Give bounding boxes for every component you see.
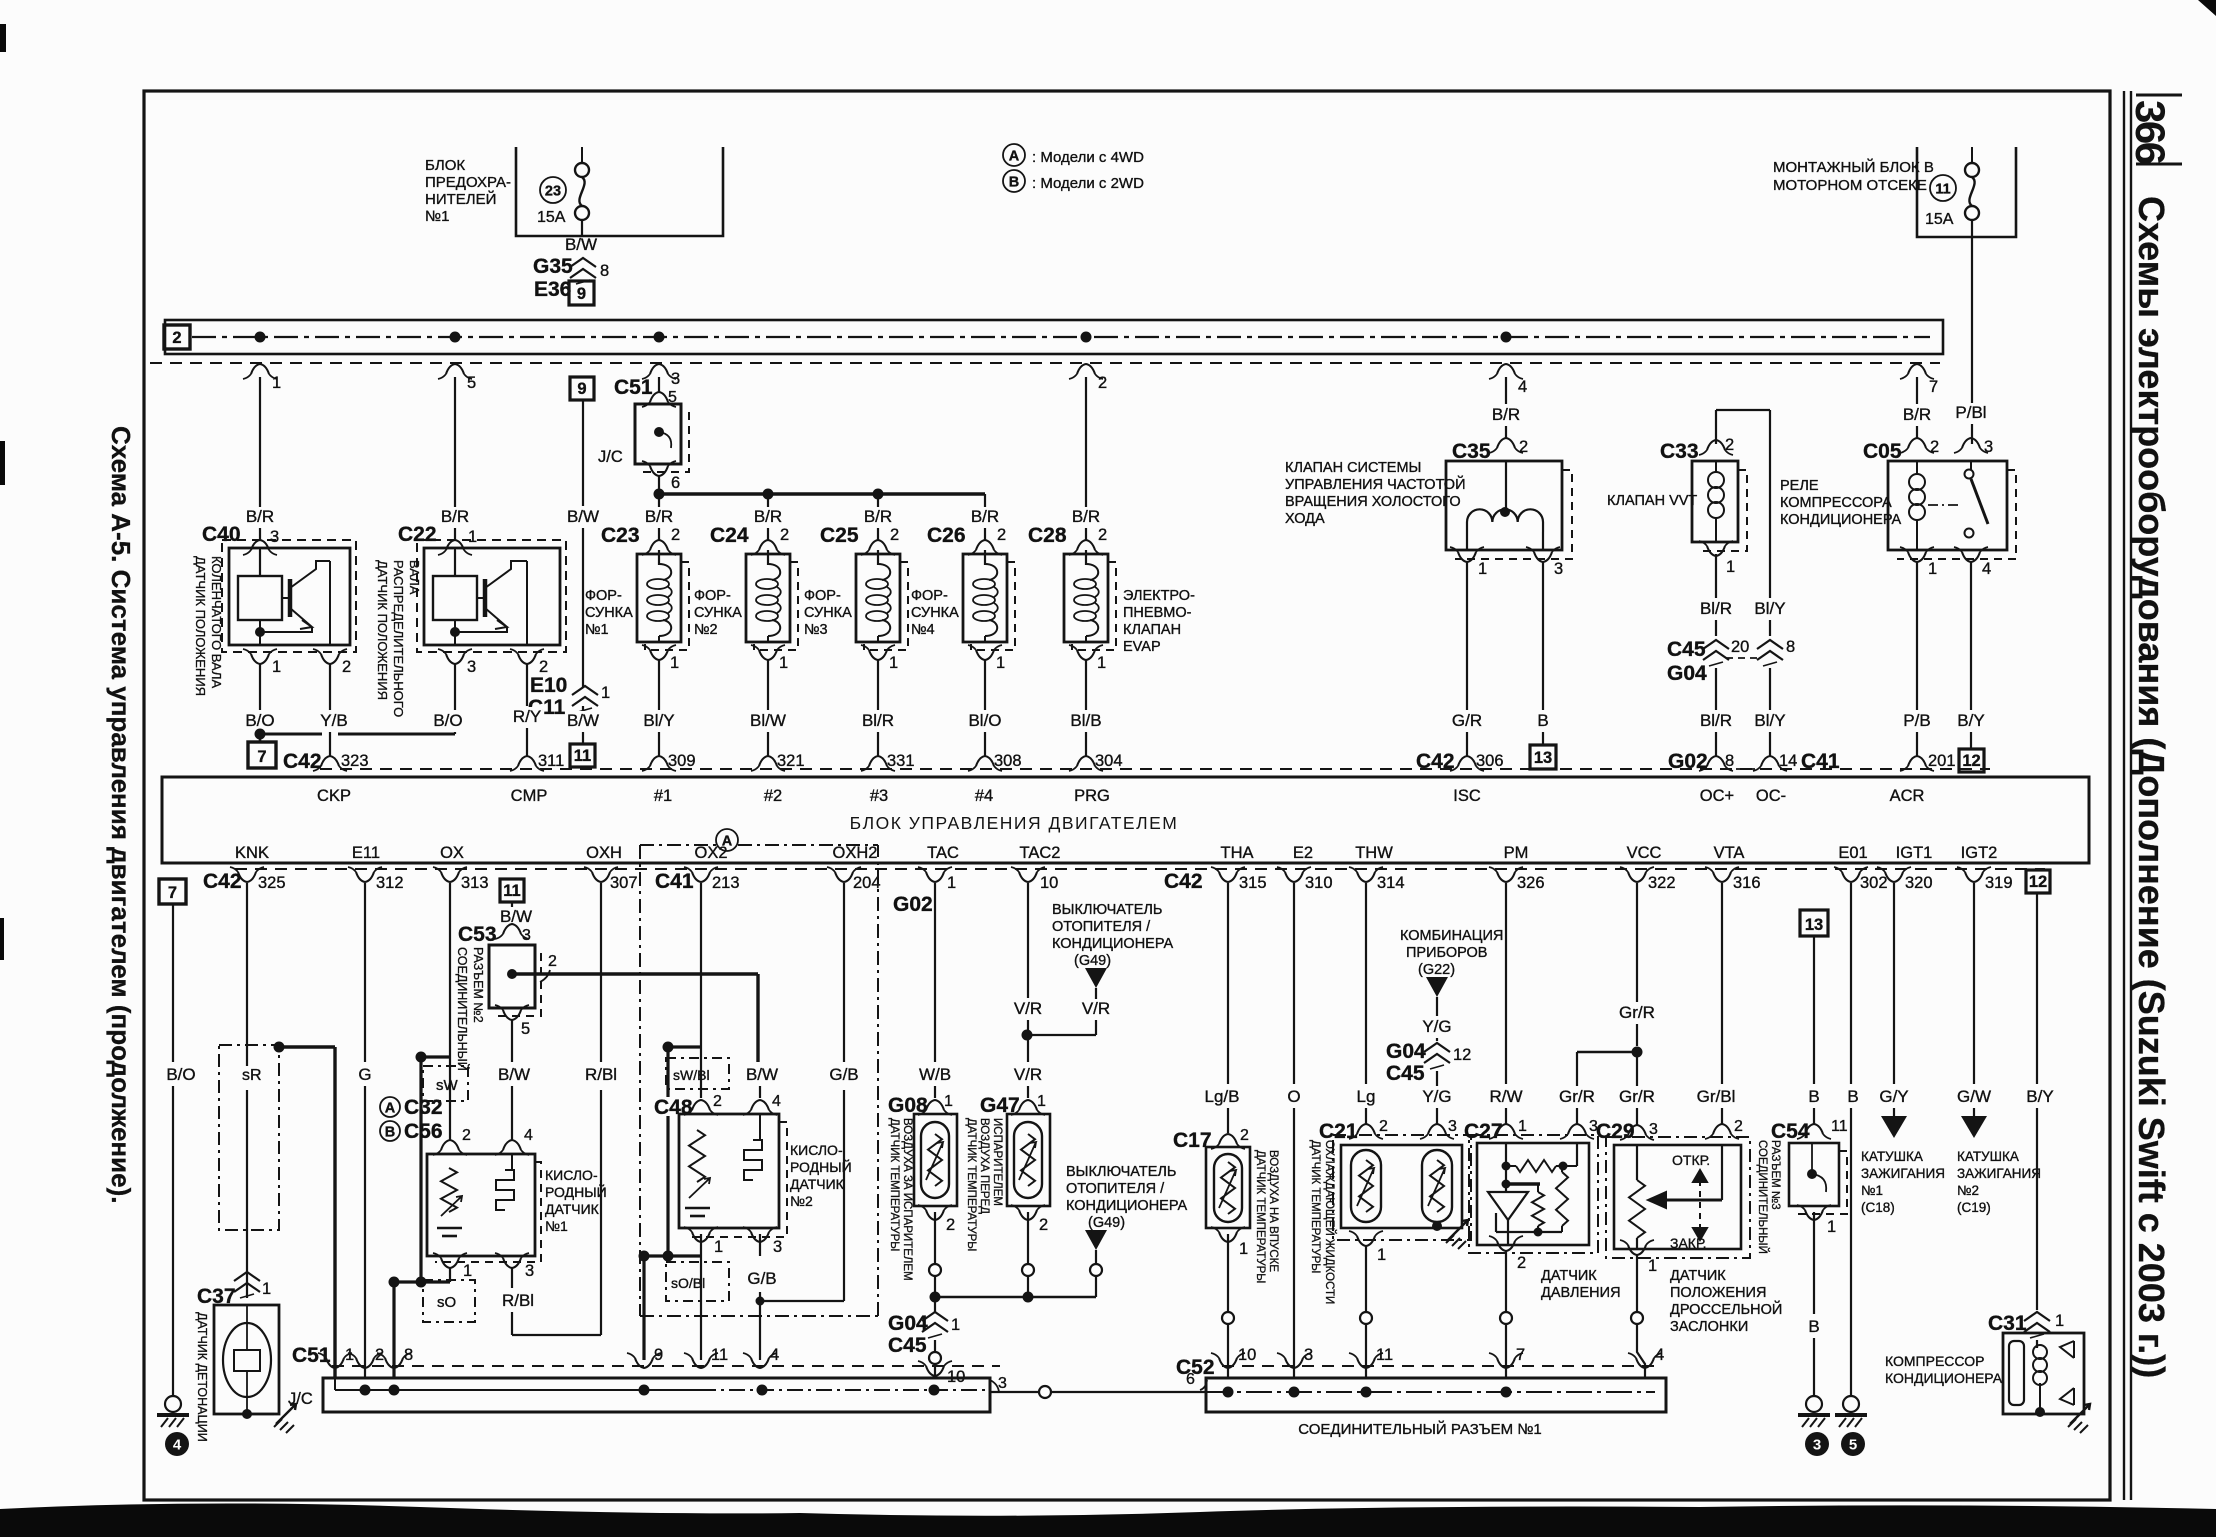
svg-text:4: 4 xyxy=(173,1437,182,1454)
svg-text:2: 2 xyxy=(713,1093,722,1110)
svg-text:315: 315 xyxy=(1239,874,1267,892)
svg-text:1: 1 xyxy=(272,658,281,676)
svg-text:G: G xyxy=(358,1065,371,1084)
svg-text:312: 312 xyxy=(376,874,404,892)
svg-text:СОЕДИНИТЕЛЬНЫЙ: СОЕДИНИТЕЛЬНЫЙ xyxy=(1756,1140,1769,1254)
svg-text:(G49): (G49) xyxy=(1088,1215,1125,1231)
svg-text:R/Bl: R/Bl xyxy=(585,1065,617,1084)
svg-text:ОТКР.: ОТКР. xyxy=(1672,1152,1710,1168)
svg-text:1: 1 xyxy=(714,1238,723,1256)
svg-text:G/R: G/R xyxy=(1452,711,1482,730)
svg-text:G/B: G/B xyxy=(829,1065,858,1084)
svg-text:Bl/R: Bl/R xyxy=(1700,599,1732,618)
svg-text:(G49): (G49) xyxy=(1074,953,1111,969)
svg-text:7: 7 xyxy=(168,884,177,902)
svg-text:307: 307 xyxy=(610,874,638,892)
svg-text:ИСПАРИТЕЛЕМ: ИСПАРИТЕЛЕМ xyxy=(991,1118,1003,1206)
svg-text:Bl/B: Bl/B xyxy=(1070,711,1101,730)
svg-text:2: 2 xyxy=(997,526,1006,544)
svg-text:Bl/R: Bl/R xyxy=(1700,711,1732,730)
svg-text:1: 1 xyxy=(951,1316,960,1334)
svg-text:J/C: J/C xyxy=(288,1390,313,1408)
svg-text:Y/B: Y/B xyxy=(320,711,347,730)
svg-text:4: 4 xyxy=(1982,560,1991,578)
svg-text:13: 13 xyxy=(1805,916,1823,934)
svg-text:Gr/R: Gr/R xyxy=(1559,1087,1595,1106)
svg-text:11: 11 xyxy=(574,747,591,765)
svg-text:3: 3 xyxy=(773,1238,782,1256)
svg-text:9: 9 xyxy=(577,380,586,398)
svg-text:ПНЕВМО-: ПНЕВМО- xyxy=(1123,605,1192,621)
svg-text:B/W: B/W xyxy=(567,507,599,526)
svg-text:ДАТЧИК: ДАТЧИК xyxy=(1670,1268,1726,1284)
svg-text:306: 306 xyxy=(1476,752,1504,770)
svg-text:3: 3 xyxy=(1649,1121,1658,1138)
svg-text:9: 9 xyxy=(577,285,586,303)
svg-text:№2: №2 xyxy=(790,1193,813,1209)
svg-text:4: 4 xyxy=(524,1127,533,1144)
svg-text:366: 366 xyxy=(2127,100,2174,164)
svg-text:C42: C42 xyxy=(203,870,242,893)
svg-text:10: 10 xyxy=(1238,1346,1256,1364)
svg-text:B/O: B/O xyxy=(433,711,462,730)
svg-text:ДРОССЕЛЬНОЙ: ДРОССЕЛЬНОЙ xyxy=(1670,1300,1782,1318)
svg-text:C32: C32 xyxy=(404,1096,443,1119)
svg-text:201: 201 xyxy=(1928,752,1956,770)
svg-text:Gr/Bl: Gr/Bl xyxy=(1697,1087,1736,1106)
svg-text:316: 316 xyxy=(1733,874,1761,892)
svg-text:БЛОК УПРАВЛЕНИЯ ДВИГАТЕЛЕМ: БЛОК УПРАВЛЕНИЯ ДВИГАТЕЛЕМ xyxy=(850,813,1179,833)
svg-text:Bl/O: Bl/O xyxy=(968,711,1001,730)
svg-text:R/Bl: R/Bl xyxy=(502,1291,534,1310)
svg-text:ОТОПИТЕЛЯ /: ОТОПИТЕЛЯ / xyxy=(1066,1181,1165,1197)
svg-text:C05: C05 xyxy=(1863,440,1902,463)
svg-text:ПОЛОЖЕНИЯ: ПОЛОЖЕНИЯ xyxy=(1670,1285,1766,1301)
svg-text:КОНДИЦИОНЕРА: КОНДИЦИОНЕРА xyxy=(1885,1370,2003,1386)
svg-text:ХОДА: ХОДА xyxy=(1285,511,1325,527)
svg-text:302: 302 xyxy=(1860,874,1888,892)
svg-text:B/R: B/R xyxy=(1903,405,1931,424)
svg-text:ВОЗДУХА ПЕРЕД: ВОЗДУХА ПЕРЕД xyxy=(978,1118,990,1214)
svg-text:СОЕДИНИТЕЛЬНЫЙ: СОЕДИНИТЕЛЬНЫЙ xyxy=(455,947,470,1071)
svg-text:E2: E2 xyxy=(1293,844,1313,862)
svg-text:Lg: Lg xyxy=(1357,1087,1376,1106)
svg-text:321: 321 xyxy=(777,752,805,770)
svg-text:1: 1 xyxy=(1648,1257,1657,1275)
svg-text:ВАЛА: ВАЛА xyxy=(407,560,422,595)
svg-text:G/B: G/B xyxy=(747,1269,776,1288)
svg-text:15A: 15A xyxy=(537,209,566,226)
svg-text:#3: #3 xyxy=(870,787,888,805)
svg-text:1: 1 xyxy=(1239,1240,1248,1258)
svg-text:#2: #2 xyxy=(764,787,782,805)
svg-text:308: 308 xyxy=(994,752,1022,770)
svg-text:ОХЛАЖДАЮЩЕЙ ЖИДКОСТИ: ОХЛАЖДАЮЩЕЙ ЖИДКОСТИ xyxy=(1323,1140,1336,1304)
svg-text:G04: G04 xyxy=(1386,1040,1426,1063)
svg-text:VCC: VCC xyxy=(1627,844,1662,862)
svg-text:РОДНЫЙ: РОДНЫЙ xyxy=(545,1183,607,1200)
svg-text:B: B xyxy=(1808,1087,1819,1106)
svg-text:OXH: OXH xyxy=(586,844,622,862)
svg-text:B/R: B/R xyxy=(441,507,469,526)
svg-text:КИСЛО-: КИСЛО- xyxy=(545,1167,598,1183)
svg-text:Bl/Y: Bl/Y xyxy=(1754,711,1785,730)
svg-text:КАТУШКА: КАТУШКА xyxy=(1957,1149,2019,1164)
svg-text:8: 8 xyxy=(1725,752,1734,770)
svg-text:10: 10 xyxy=(1040,874,1058,892)
svg-text:1: 1 xyxy=(468,528,477,546)
svg-text:12: 12 xyxy=(2029,873,2047,891)
svg-text:1: 1 xyxy=(889,654,898,672)
svg-text:PM: PM xyxy=(1504,844,1529,862)
svg-text:B: B xyxy=(1847,1087,1858,1106)
svg-text:C40: C40 xyxy=(202,523,241,546)
svg-text:1: 1 xyxy=(670,654,679,672)
svg-text:OC+: OC+ xyxy=(1700,787,1734,805)
svg-text:IGT1: IGT1 xyxy=(1896,844,1933,862)
svg-text:5: 5 xyxy=(467,374,476,392)
svg-text:VTA: VTA xyxy=(1714,844,1745,862)
svg-text:№4: №4 xyxy=(911,622,935,638)
svg-text:#4: #4 xyxy=(975,787,993,805)
svg-text:6: 6 xyxy=(1186,1371,1195,1388)
svg-text:3: 3 xyxy=(467,658,476,676)
svg-text:ДАТЧИК ТЕМПЕРАТУРЫ: ДАТЧИК ТЕМПЕРАТУРЫ xyxy=(888,1118,900,1251)
svg-text:ПРЕДОХРА-: ПРЕДОХРА- xyxy=(425,174,511,191)
svg-text:A: A xyxy=(385,1101,396,1117)
svg-text:4: 4 xyxy=(1518,378,1527,396)
svg-text:2: 2 xyxy=(172,329,181,347)
svg-text:СУНКА: СУНКА xyxy=(585,605,633,621)
svg-text:ЗАСЛОНКИ: ЗАСЛОНКИ xyxy=(1670,1319,1748,1335)
svg-text:C35: C35 xyxy=(1452,440,1491,463)
svg-text:7: 7 xyxy=(1516,1346,1525,1364)
svg-text:2: 2 xyxy=(1240,1127,1249,1144)
svg-text:КОМПРЕССОРА: КОМПРЕССОРА xyxy=(1780,495,1892,511)
svg-text:5: 5 xyxy=(1849,1437,1857,1454)
svg-text:1: 1 xyxy=(2055,1312,2064,1330)
svg-text:11: 11 xyxy=(503,882,520,900)
svg-text:B: B xyxy=(1009,175,1019,191)
svg-text:НИТЕЛЕЙ: НИТЕЛЕЙ xyxy=(425,190,496,208)
svg-text:1: 1 xyxy=(1518,1118,1527,1135)
svg-text:КЛАПАН VVT: КЛАПАН VVT xyxy=(1607,493,1697,509)
svg-text:304: 304 xyxy=(1095,752,1123,770)
svg-text:ПРИБОРОВ: ПРИБОРОВ xyxy=(1406,945,1487,961)
svg-text:B/W: B/W xyxy=(498,1065,530,1084)
svg-text:sO/Bl: sO/Bl xyxy=(671,1275,705,1291)
svg-text:C25: C25 xyxy=(820,524,859,547)
svg-text:ВОЗДУХА ЗА ИСПАРИТЕЛЕМ: ВОЗДУХА ЗА ИСПАРИТЕЛЕМ xyxy=(901,1118,913,1281)
svg-text:Bl/Y: Bl/Y xyxy=(1754,599,1785,618)
svg-text:C33: C33 xyxy=(1660,440,1699,463)
svg-text:C45: C45 xyxy=(1667,638,1706,661)
svg-text:1: 1 xyxy=(272,374,281,392)
svg-text:КЛАПАН СИСТЕМЫ: КЛАПАН СИСТЕМЫ xyxy=(1285,460,1421,476)
svg-text:ВЫКЛЮЧАТЕЛЬ: ВЫКЛЮЧАТЕЛЬ xyxy=(1066,1164,1176,1180)
svg-text:Схема А-5. Система управления: Схема А-5. Система управления двигателем… xyxy=(106,426,136,1203)
svg-text:СУНКА: СУНКА xyxy=(694,605,742,621)
svg-text:ДАТЧИК ТЕМПЕРАТУРЫ: ДАТЧИК ТЕМПЕРАТУРЫ xyxy=(965,1118,977,1251)
svg-text:2: 2 xyxy=(539,658,548,676)
svg-text:322: 322 xyxy=(1648,874,1676,892)
svg-text:2: 2 xyxy=(1930,438,1939,456)
svg-text:1: 1 xyxy=(1827,1218,1836,1236)
svg-text:1: 1 xyxy=(1726,558,1735,576)
svg-text:1: 1 xyxy=(262,1280,271,1298)
svg-text:РАСПРЕДЕЛИТЕЛЬНОГО: РАСПРЕДЕЛИТЕЛЬНОГО xyxy=(391,560,406,717)
svg-text:СУНКА: СУНКА xyxy=(804,605,852,621)
svg-text:sW: sW xyxy=(436,1077,459,1094)
svg-text:КЛАПАН: КЛАПАН xyxy=(1123,622,1181,638)
svg-text:C31: C31 xyxy=(1988,1312,2027,1335)
svg-text:314: 314 xyxy=(1377,874,1405,892)
svg-text:8: 8 xyxy=(404,1346,413,1364)
svg-text:C56: C56 xyxy=(404,1120,443,1143)
svg-text:КОНДИЦИОНЕРА: КОНДИЦИОНЕРА xyxy=(1052,936,1174,952)
svg-text:C45: C45 xyxy=(1386,1062,1425,1085)
svg-text:E36: E36 xyxy=(534,278,571,301)
svg-text:B/R: B/R xyxy=(1072,507,1100,526)
svg-text:: Модели с 4WD: : Модели с 4WD xyxy=(1032,149,1144,166)
svg-text:2: 2 xyxy=(890,526,899,544)
svg-text:331: 331 xyxy=(887,752,915,770)
svg-text:ISC: ISC xyxy=(1453,787,1481,805)
svg-text:G/W: G/W xyxy=(1957,1087,1991,1106)
svg-text:ЗАКР.: ЗАКР. xyxy=(1670,1235,1707,1251)
svg-text:ДАТЧИК ТЕМПЕРАТУРЫ: ДАТЧИК ТЕМПЕРАТУРЫ xyxy=(1309,1140,1321,1273)
svg-text:V/R: V/R xyxy=(1082,999,1110,1018)
svg-text:8: 8 xyxy=(600,262,609,280)
svg-text:ВРАЩЕНИЯ ХОЛОСТОГО: ВРАЩЕНИЯ ХОЛОСТОГО xyxy=(1285,494,1461,510)
svg-text:2: 2 xyxy=(462,1127,471,1144)
svg-text:2: 2 xyxy=(1098,374,1107,392)
svg-text:23: 23 xyxy=(545,184,561,200)
svg-text:Y/G: Y/G xyxy=(1422,1087,1451,1106)
svg-text:ДАТЧИК ДЕТОНАЦИИ: ДАТЧИК ДЕТОНАЦИИ xyxy=(195,1312,209,1442)
svg-text:КОНДИЦИОНЕРА: КОНДИЦИОНЕРА xyxy=(1780,512,1902,528)
svg-text:2: 2 xyxy=(1379,1118,1388,1135)
svg-text:323: 323 xyxy=(341,752,369,770)
svg-text:EVAP: EVAP xyxy=(1123,639,1161,655)
svg-text:B/R: B/R xyxy=(864,507,892,526)
svg-text:310: 310 xyxy=(1305,874,1333,892)
svg-text:СОЕДИНИТЕЛЬНЫЙ РАЗЪЕМ №1: СОЕДИНИТЕЛЬНЫЙ РАЗЪЕМ №1 xyxy=(1298,1420,1542,1438)
svg-text:КАТУШКА: КАТУШКА xyxy=(1861,1149,1923,1164)
svg-text:РОДНЫЙ: РОДНЫЙ xyxy=(790,1158,852,1175)
svg-text:ЗАЖИГАНИЯ: ЗАЖИГАНИЯ xyxy=(1957,1166,2041,1181)
svg-text:УПРАВЛЕНИЯ ЧАСТОТОЙ: УПРАВЛЕНИЯ ЧАСТОТОЙ xyxy=(1285,475,1466,493)
svg-text:TAC: TAC xyxy=(927,844,959,862)
svg-text:320: 320 xyxy=(1905,874,1933,892)
svg-text:12: 12 xyxy=(1453,1046,1471,1064)
svg-text:2: 2 xyxy=(342,658,351,676)
svg-text:C26: C26 xyxy=(927,524,966,547)
svg-text:ДАТЧИК ПОЛОЖЕНИЯ: ДАТЧИК ПОЛОЖЕНИЯ xyxy=(375,560,390,700)
svg-text:№3: №3 xyxy=(804,622,828,638)
svg-text:11: 11 xyxy=(711,1346,728,1364)
svg-text:: Модели с 2WD: : Модели с 2WD xyxy=(1032,175,1144,192)
svg-text:2: 2 xyxy=(780,526,789,544)
svg-text:309: 309 xyxy=(668,752,696,770)
svg-text:ФОР-: ФОР- xyxy=(911,588,948,604)
svg-text:G04: G04 xyxy=(1667,662,1707,685)
svg-text:E11: E11 xyxy=(352,844,380,862)
svg-text:IGT2: IGT2 xyxy=(1961,844,1998,862)
svg-text:C53: C53 xyxy=(458,923,497,946)
svg-text:TAC2: TAC2 xyxy=(1020,844,1061,862)
svg-text:1: 1 xyxy=(1478,560,1487,578)
svg-text:3: 3 xyxy=(1304,1346,1313,1364)
svg-text:Gr/R: Gr/R xyxy=(1619,1087,1655,1106)
svg-text:PRG: PRG xyxy=(1074,787,1110,805)
svg-text:ДАТЧИК: ДАТЧИК xyxy=(545,1201,600,1217)
svg-text:THA: THA xyxy=(1221,844,1254,862)
svg-text:C42: C42 xyxy=(1164,870,1203,893)
svg-text:ВОЗДУХА НА ВПУСКЕ: ВОЗДУХА НА ВПУСКЕ xyxy=(1267,1150,1279,1272)
svg-text:B/R: B/R xyxy=(971,507,999,526)
svg-text:B: B xyxy=(385,1125,395,1141)
svg-text:B: B xyxy=(1537,711,1548,730)
svg-text:B/Y: B/Y xyxy=(2026,1087,2053,1106)
svg-text:1: 1 xyxy=(947,874,956,892)
svg-text:2: 2 xyxy=(1039,1216,1048,1234)
svg-text:Bl/Y: Bl/Y xyxy=(643,711,674,730)
svg-text:V/R: V/R xyxy=(1014,1065,1042,1084)
svg-text:B/W: B/W xyxy=(746,1065,778,1084)
svg-text:ВЫКЛЮЧАТЕЛЬ: ВЫКЛЮЧАТЕЛЬ xyxy=(1052,902,1162,918)
svg-text:ДАТЧИК ТЕМПЕРАТУРЫ: ДАТЧИК ТЕМПЕРАТУРЫ xyxy=(1254,1150,1266,1283)
svg-text:РАЗЪЕМ №2: РАЗЪЕМ №2 xyxy=(471,947,485,1023)
svg-text:11: 11 xyxy=(1935,182,1950,198)
svg-text:C27: C27 xyxy=(1464,1120,1503,1143)
svg-text:sW/Bl: sW/Bl xyxy=(673,1067,710,1083)
svg-text:P/B: P/B xyxy=(1903,711,1930,730)
svg-text:A: A xyxy=(1009,149,1020,165)
svg-text:G/Y: G/Y xyxy=(1879,1087,1908,1106)
svg-text:МОНТАЖНЫЙ БЛОК В: МОНТАЖНЫЙ БЛОК В xyxy=(1773,158,1934,176)
svg-text:№1: №1 xyxy=(585,622,609,638)
svg-text:1: 1 xyxy=(779,654,788,672)
svg-text:№1: №1 xyxy=(545,1218,568,1234)
svg-text:7: 7 xyxy=(1929,378,1938,396)
svg-text:C41: C41 xyxy=(1801,750,1840,773)
svg-text:11: 11 xyxy=(1831,1118,1848,1135)
svg-text:Lg/B: Lg/B xyxy=(1205,1087,1240,1106)
svg-text:12: 12 xyxy=(1962,752,1980,770)
svg-text:B/R: B/R xyxy=(246,507,274,526)
svg-text:ДАВЛЕНИЯ: ДАВЛЕНИЯ xyxy=(1541,1285,1621,1301)
svg-text:1: 1 xyxy=(996,654,1005,672)
svg-text:Bl/W: Bl/W xyxy=(750,711,786,730)
svg-text:7: 7 xyxy=(257,748,266,766)
svg-text:A: A xyxy=(722,834,733,850)
svg-text:14: 14 xyxy=(1779,752,1797,770)
svg-text:sR: sR xyxy=(242,1067,262,1084)
svg-text:1: 1 xyxy=(1037,1093,1046,1110)
svg-text:B/W: B/W xyxy=(500,907,532,926)
svg-text:1: 1 xyxy=(463,1262,472,1280)
svg-text:1: 1 xyxy=(1377,1246,1386,1264)
svg-text:J/C: J/C xyxy=(598,448,623,466)
svg-text:15A: 15A xyxy=(1925,211,1954,228)
svg-text:1: 1 xyxy=(1097,654,1106,672)
svg-text:CKP: CKP xyxy=(317,787,351,805)
svg-text:Gr/R: Gr/R xyxy=(1619,1003,1655,1022)
svg-text:1: 1 xyxy=(944,1093,953,1110)
svg-text:РАЗЪЕМ №3: РАЗЪЕМ №3 xyxy=(1769,1140,1781,1210)
svg-text:3: 3 xyxy=(1554,560,1563,578)
svg-text:11: 11 xyxy=(1376,1346,1393,1364)
svg-text:КОЛЕНЧАТОГО ВАЛА: КОЛЕНЧАТОГО ВАЛА xyxy=(209,556,224,689)
svg-text:204: 204 xyxy=(853,874,881,892)
svg-text:C22: C22 xyxy=(398,523,437,546)
svg-text:CMP: CMP xyxy=(511,787,548,805)
svg-text:C42: C42 xyxy=(1416,750,1455,773)
svg-text:B/W: B/W xyxy=(565,235,597,254)
svg-text:3: 3 xyxy=(671,370,680,388)
svg-text:E10: E10 xyxy=(530,674,567,697)
svg-text:C24: C24 xyxy=(710,524,749,547)
svg-text:B: B xyxy=(1808,1317,1819,1336)
svg-text:Y/G: Y/G xyxy=(1422,1017,1451,1036)
svg-text:2: 2 xyxy=(946,1216,955,1234)
svg-text:C28: C28 xyxy=(1028,524,1067,547)
svg-text:P/Bl: P/Bl xyxy=(1955,403,1986,422)
svg-text:ФОР-: ФОР- xyxy=(694,588,731,604)
svg-text:3: 3 xyxy=(270,528,279,546)
svg-text:G02: G02 xyxy=(893,893,933,916)
svg-text:ЭЛЕКТРО-: ЭЛЕКТРО- xyxy=(1123,588,1195,604)
svg-text:B/O: B/O xyxy=(245,711,274,730)
svg-text:V/R: V/R xyxy=(1014,999,1042,1018)
svg-text:ЗАЖИГАНИЯ: ЗАЖИГАНИЯ xyxy=(1861,1166,1945,1181)
svg-text:4: 4 xyxy=(1655,1346,1664,1364)
svg-text:ДАТЧИК: ДАТЧИК xyxy=(1541,1268,1597,1284)
svg-text:B/R: B/R xyxy=(645,507,673,526)
svg-text:B/O: B/O xyxy=(166,1065,195,1084)
svg-text:1: 1 xyxy=(601,684,610,702)
svg-text:13: 13 xyxy=(1534,749,1552,767)
svg-text:THW: THW xyxy=(1355,844,1393,862)
svg-text:KNK: KNK xyxy=(235,844,269,862)
svg-text:3: 3 xyxy=(1813,1437,1821,1454)
svg-text:213: 213 xyxy=(712,874,740,892)
svg-text:КИСЛО-: КИСЛО- xyxy=(790,1142,843,1158)
svg-text:Схемы электрооборудования (Доп: Схемы электрооборудования (Дополнение (S… xyxy=(2131,196,2172,1378)
svg-text:C42: C42 xyxy=(283,750,322,773)
svg-text:313: 313 xyxy=(461,874,489,892)
svg-text:319: 319 xyxy=(1985,874,2013,892)
svg-text:2: 2 xyxy=(1517,1254,1526,1272)
svg-text:(G22): (G22) xyxy=(1418,962,1455,978)
svg-text:R/Y: R/Y xyxy=(513,707,541,726)
svg-text:Bl/R: Bl/R xyxy=(862,711,894,730)
svg-text:#1: #1 xyxy=(654,787,672,805)
svg-text:C52: C52 xyxy=(1176,1356,1215,1379)
svg-text:(С19): (С19) xyxy=(1957,1200,1991,1215)
svg-text:326: 326 xyxy=(1517,874,1545,892)
svg-text:OXH2: OXH2 xyxy=(833,844,878,862)
svg-text:№2: №2 xyxy=(1957,1183,1979,1198)
svg-text:№1: №1 xyxy=(1861,1183,1883,1198)
svg-text:КОНДИЦИОНЕРА: КОНДИЦИОНЕРА xyxy=(1066,1198,1188,1214)
svg-text:9: 9 xyxy=(654,1346,663,1364)
svg-text:C23: C23 xyxy=(601,524,640,547)
svg-text:№1: №1 xyxy=(425,208,449,225)
svg-text:ФОР-: ФОР- xyxy=(585,588,622,604)
svg-text:C41: C41 xyxy=(655,870,694,893)
